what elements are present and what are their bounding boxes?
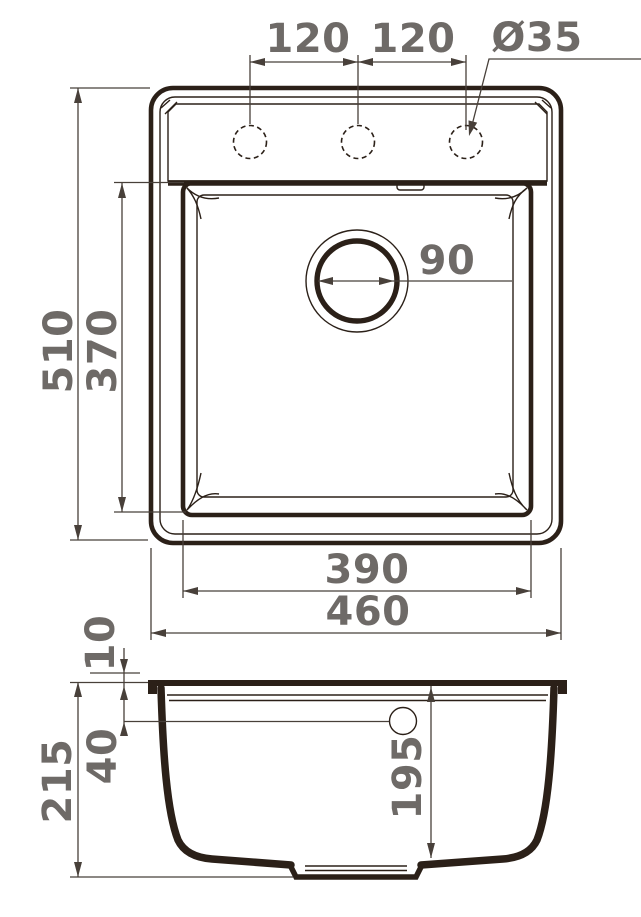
faucet-hole-left <box>234 126 267 159</box>
bowl-corner-chamfer-br <box>495 473 527 510</box>
sink-inner-edge-line <box>160 97 552 534</box>
dim-label-hole-spacing-right: 120 <box>371 19 456 59</box>
bowl-corner-chamfer-tl <box>187 188 219 219</box>
dim-label-bowl-length: 370 <box>83 309 123 394</box>
bowl-corner-chamfer-tr <box>495 188 527 219</box>
dim-label-rim-height: 10 <box>81 615 121 672</box>
dim-label-hole-diameter: Ø35 <box>491 18 582 58</box>
dim-label-bowl-width: 390 <box>325 550 410 590</box>
overflow-hole <box>390 708 417 735</box>
dim-label-overall-depth: 215 <box>38 739 78 824</box>
dim-label-overall-length: 510 <box>39 309 79 394</box>
rim-lip-left <box>148 680 157 694</box>
side-view <box>148 680 567 877</box>
top-view <box>151 88 561 543</box>
dim-label-drain-diameter: 90 <box>419 241 476 281</box>
bowl-corner-chamfer-bl <box>187 473 219 510</box>
drain-recess-ridges <box>305 866 407 871</box>
bowl-edge <box>183 183 531 515</box>
hole-extension-lines <box>250 55 466 130</box>
dim-label-hole-spacing-left: 120 <box>266 19 351 59</box>
faucet-hole-center <box>342 126 375 159</box>
dim-label-overflow-depth: 40 <box>83 728 123 785</box>
dim-label-bowl-depth: 195 <box>388 735 428 820</box>
interior-rim-lines <box>167 695 548 701</box>
faucet-hole-right <box>450 126 483 159</box>
sink-dimension-drawing: 120 120 Ø35 90 510 370 390 460 10 40 215… <box>0 0 641 917</box>
dim-label-overall-width: 460 <box>326 592 411 632</box>
wall-left <box>161 688 291 865</box>
sink-outer-edge <box>151 88 561 543</box>
rim-lip-right <box>558 680 567 694</box>
wall-right <box>421 688 554 865</box>
rim-top <box>148 680 567 686</box>
